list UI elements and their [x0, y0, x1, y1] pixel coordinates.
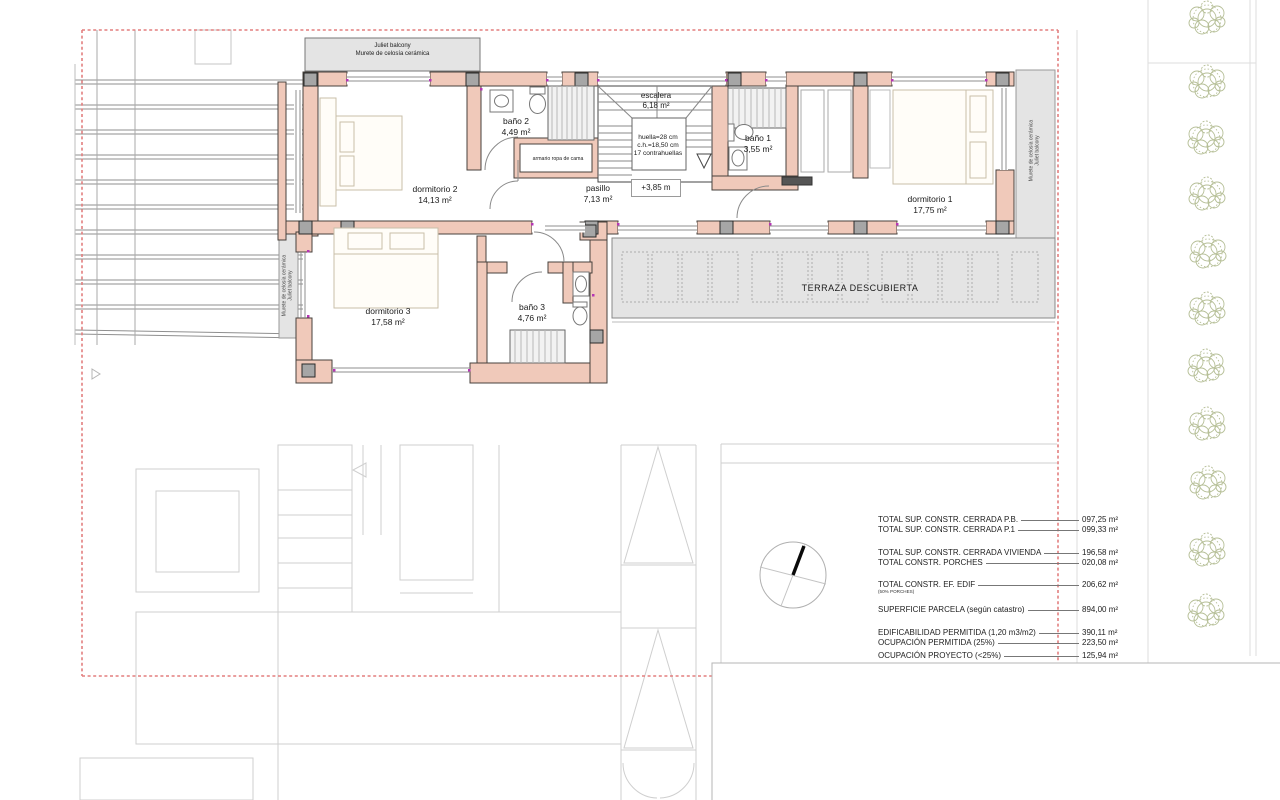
row-label: OCUPACIÓN PROYECTO (<25%)	[878, 651, 1001, 660]
juliet-balcony-top-label: Juliet balcony Murete de celosía cerámic…	[305, 43, 480, 58]
stair-note-line2: c.h.=18,50 cm	[622, 142, 694, 150]
row-value: 390,11 m²	[1082, 628, 1128, 637]
leader-line	[1021, 519, 1079, 521]
tree-icon	[1188, 594, 1224, 627]
sheet-overlay	[712, 663, 1280, 800]
leader-line	[978, 584, 1079, 586]
row-label: EDIFICABILIDAD PERMITIDA (1,20 m3/m2)	[878, 628, 1036, 637]
row-value: 223,50 m²	[1082, 638, 1128, 647]
leader-line	[1018, 529, 1079, 531]
leader-line	[1044, 552, 1079, 554]
leader-line	[1039, 632, 1079, 634]
stair-note-line1: huella=28 cm	[622, 134, 694, 142]
tree-icon	[1189, 407, 1225, 440]
room-name: escalera	[616, 91, 696, 101]
room-area: 17,75 m²	[870, 205, 990, 216]
level-mark: +3,85 m	[631, 179, 681, 197]
room-label-escalera: escalera 6,18 m²	[616, 91, 696, 110]
room-name: baño 1	[718, 133, 798, 144]
room-name: baño 3	[492, 302, 572, 313]
room-label-dormitorio3: dormitorio 3 17,58 m²	[328, 306, 448, 327]
row-value: 894,00 m²	[1082, 605, 1128, 614]
room-label-bano3: baño 3 4,76 m²	[492, 302, 572, 323]
room-name: dormitorio 3	[328, 306, 448, 317]
table-row: TOTAL SUP. CONSTR. CERRADA VIVIENDA 196,…	[878, 546, 1128, 557]
room-label-bano1: baño 1 3,55 m²	[718, 133, 798, 154]
row-value: 196,58 m²	[1082, 548, 1128, 557]
table-row: OCUPACIÓN PROYECTO (<25%) 125,94 m²	[878, 649, 1128, 660]
row-label: TOTAL SUP. CONSTR. CERRADA P.B.	[878, 515, 1018, 524]
room-name: baño 2	[476, 116, 556, 127]
table-row: TOTAL CONSTR. EF. EDIF 206,62 m²	[878, 578, 1128, 589]
pergola-lines	[75, 30, 303, 345]
row-label: TOTAL SUP. CONSTR. CERRADA P.1	[878, 525, 1015, 534]
table-row: SUPERFICIE PARCELA (según catastro) 894,…	[878, 604, 1128, 615]
row-value: 125,94 m²	[1082, 651, 1128, 660]
table-row: EDIFICABILIDAD PERMITIDA (1,20 m3/m2) 39…	[878, 626, 1128, 637]
table-row: TOTAL SUP. CONSTR. CERRADA P.1 099,33 m²	[878, 524, 1128, 535]
balcony-label-line2: Juliet balcony	[1035, 99, 1041, 203]
floor-plan-drawing	[0, 0, 1280, 800]
room-area: 14,13 m²	[375, 195, 495, 206]
tree-icon	[1188, 349, 1224, 382]
room-area: 3,55 m²	[718, 144, 798, 155]
row-label: TOTAL CONSTR. PORCHES	[878, 558, 983, 567]
room-area: 4,76 m²	[492, 313, 572, 324]
leader-line	[998, 642, 1079, 644]
row-value: 097,25 m²	[1082, 515, 1128, 524]
juliet-balcony-right-label: Murete de celosía cerámica Juliet balcon…	[1029, 99, 1042, 203]
room-label-pasillo: pasillo 7,13 m²	[558, 183, 638, 204]
table-row: OCUPACIÓN PERMITIDA (25%) 223,50 m²	[878, 637, 1128, 648]
room-area: 6,18 m²	[616, 101, 696, 111]
floor-plan-sheet: Juliet balcony Murete de celosía cerámic…	[0, 0, 1280, 800]
row-sublabel: (50% PORCHES)	[878, 589, 1128, 595]
row-value: 099,33 m²	[1082, 525, 1128, 534]
room-area: 17,58 m²	[328, 317, 448, 328]
room-area: 4,49 m²	[476, 127, 556, 138]
room-name: pasillo	[558, 183, 638, 194]
tree-icon	[1189, 533, 1225, 566]
row-label: SUPERFICIE PARCELA (según catastro)	[878, 605, 1025, 614]
room-label-dormitorio1: dormitorio 1 17,75 m²	[870, 194, 990, 215]
room-name: dormitorio 2	[375, 184, 495, 195]
leader-line	[1004, 655, 1079, 657]
row-value: 206,62 m²	[1082, 580, 1128, 589]
stair-note-line3: 17 contrahuellas	[622, 150, 694, 158]
tree-icon	[1189, 177, 1225, 210]
closet-label: armario ropa de cama	[520, 156, 596, 162]
juliet-balcony-left-label: Murete de celosía cerámica Juliet balcon…	[282, 234, 295, 338]
stair-dimensions-note: huella=28 cm c.h.=18,50 cm 17 contrahuel…	[622, 134, 694, 159]
leader-line	[1028, 609, 1079, 611]
tree-icon	[1190, 235, 1226, 268]
table-row: TOTAL CONSTR. PORCHES 020,08 m²	[878, 557, 1128, 568]
summary-table: TOTAL SUP. CONSTR. CERRADA P.B. 097,25 m…	[878, 513, 1128, 660]
row-label: TOTAL CONSTR. EF. EDIF	[878, 580, 975, 589]
tree-icon	[1189, 1, 1225, 34]
balcony-label-line2: Murete de celosía cerámica	[305, 51, 480, 59]
room-name: dormitorio 1	[870, 194, 990, 205]
balcony-label-line1: Juliet balcony	[305, 43, 480, 51]
row-value: 020,08 m²	[1082, 558, 1128, 567]
room-label-bano2: baño 2 4,49 m²	[476, 116, 556, 137]
row-label: OCUPACIÓN PERMITIDA (25%)	[878, 638, 995, 647]
balcony-label-line2: Juliet balcony	[288, 234, 294, 338]
tree-icon	[1188, 121, 1224, 154]
room-label-terraza: TERRAZA DESCUBIERTA	[740, 283, 980, 294]
leader-line	[986, 562, 1079, 564]
tree-icon	[1190, 466, 1226, 499]
room-area: 7,13 m²	[558, 194, 638, 205]
compass-icon	[760, 542, 826, 608]
tree-icon	[1189, 292, 1225, 325]
row-label: TOTAL SUP. CONSTR. CERRADA VIVIENDA	[878, 548, 1041, 557]
room-name: TERRAZA DESCUBIERTA	[799, 283, 922, 293]
table-row: TOTAL SUP. CONSTR. CERRADA P.B. 097,25 m…	[878, 513, 1128, 524]
room-label-dormitorio2: dormitorio 2 14,13 m²	[375, 184, 495, 205]
tree-icon	[1189, 65, 1225, 98]
